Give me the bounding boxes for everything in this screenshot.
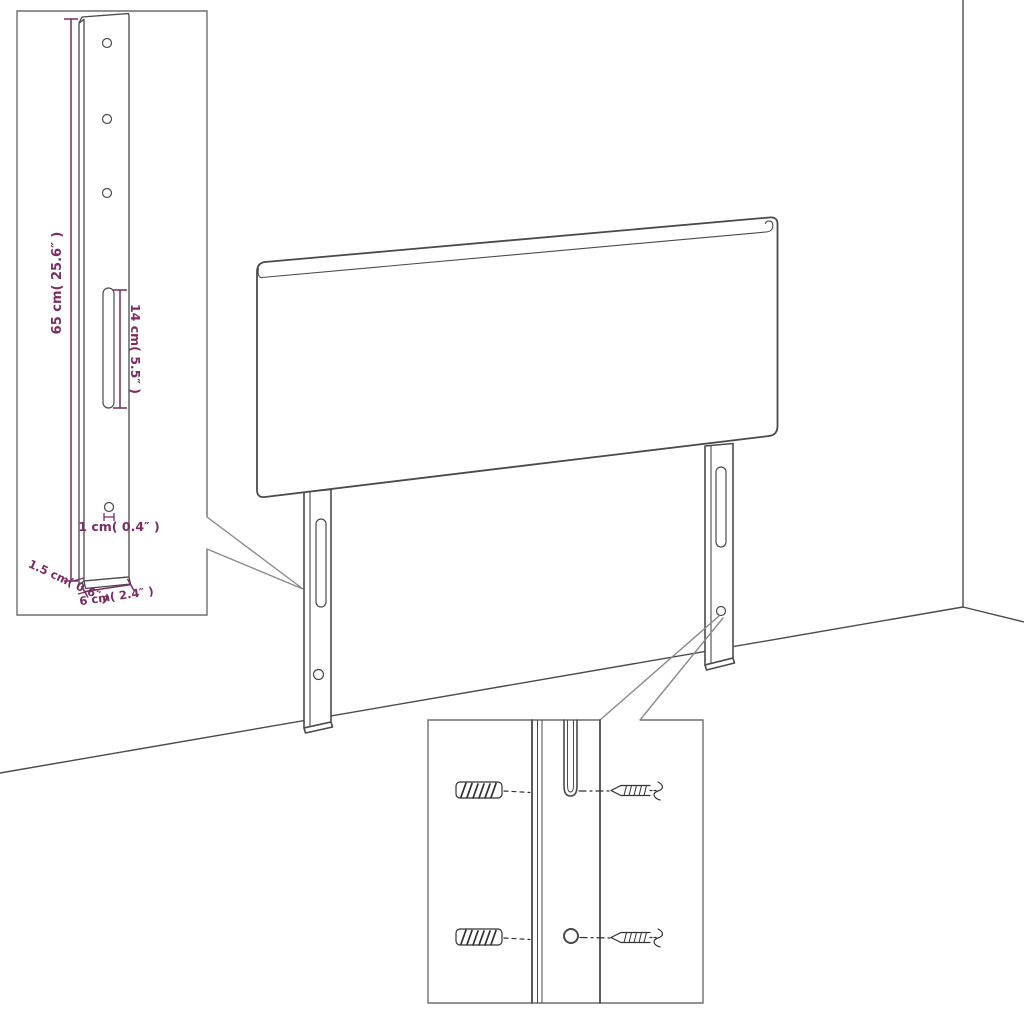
post-side-edge [79,20,84,586]
dimension-label-height: 65 cm( 25.6″ ) [50,232,65,335]
panel-face [257,217,778,497]
floor-line-right [963,607,1024,622]
post-hole [564,929,578,943]
leg-post-drawing [79,14,131,589]
screw-threads [624,786,647,796]
assembly-diagram: 65 cm( 25.6″ ) 14 cm( 5.5″ ) 1 cm( 0.4″ … [0,0,1024,1024]
post-small-hole [105,503,114,512]
slot-outer [564,720,577,796]
diagram-canvas: 65 cm( 25.6″ ) 14 cm( 5.5″ ) 1 cm( 0.4″ … [0,0,1024,1024]
right-leg [705,444,735,671]
plug-leader-top [504,791,530,793]
screw-threads [624,933,647,943]
dimension-65cm: 65 cm( 25.6″ ) [50,19,78,581]
slot-inner [568,720,574,792]
right-leg-slot [716,467,726,547]
hardware-row-top [456,782,663,800]
post-slot [103,288,114,408]
hardware-post [532,720,600,1003]
hardware-row-bottom [456,929,663,947]
headboard-panel [257,217,778,497]
mounting-hole-1 [103,39,112,48]
mounting-hole-3 [103,189,112,198]
dimension-label-hole: 1 cm( 0.4″ ) [78,519,159,534]
left-leg-hole [314,670,324,680]
wall-plug-bottom [456,929,530,945]
post-inner-edges [538,720,543,1003]
screw-leader-bottom [580,938,610,939]
wall-plug-ribs [461,930,496,945]
floor-line-left [0,607,963,773]
left-leg-slot [316,519,326,607]
screw-bottom [611,929,663,947]
plug-leader-bottom [504,938,530,940]
wall-plug-top [456,782,530,798]
right-leg-hole [717,607,726,616]
dimension-line-65cm [64,19,78,581]
mounting-hole-2 [103,115,112,124]
dimension-label-slot-length: 14 cm( 5.5″ ) [128,304,143,394]
screw-top [611,782,663,800]
inset-callout-wedge [207,517,303,589]
left-leg [304,490,333,734]
wall-plug-ribs [461,783,496,798]
headboard-drawing [257,217,778,733]
hardware-inset-border [428,720,703,1003]
